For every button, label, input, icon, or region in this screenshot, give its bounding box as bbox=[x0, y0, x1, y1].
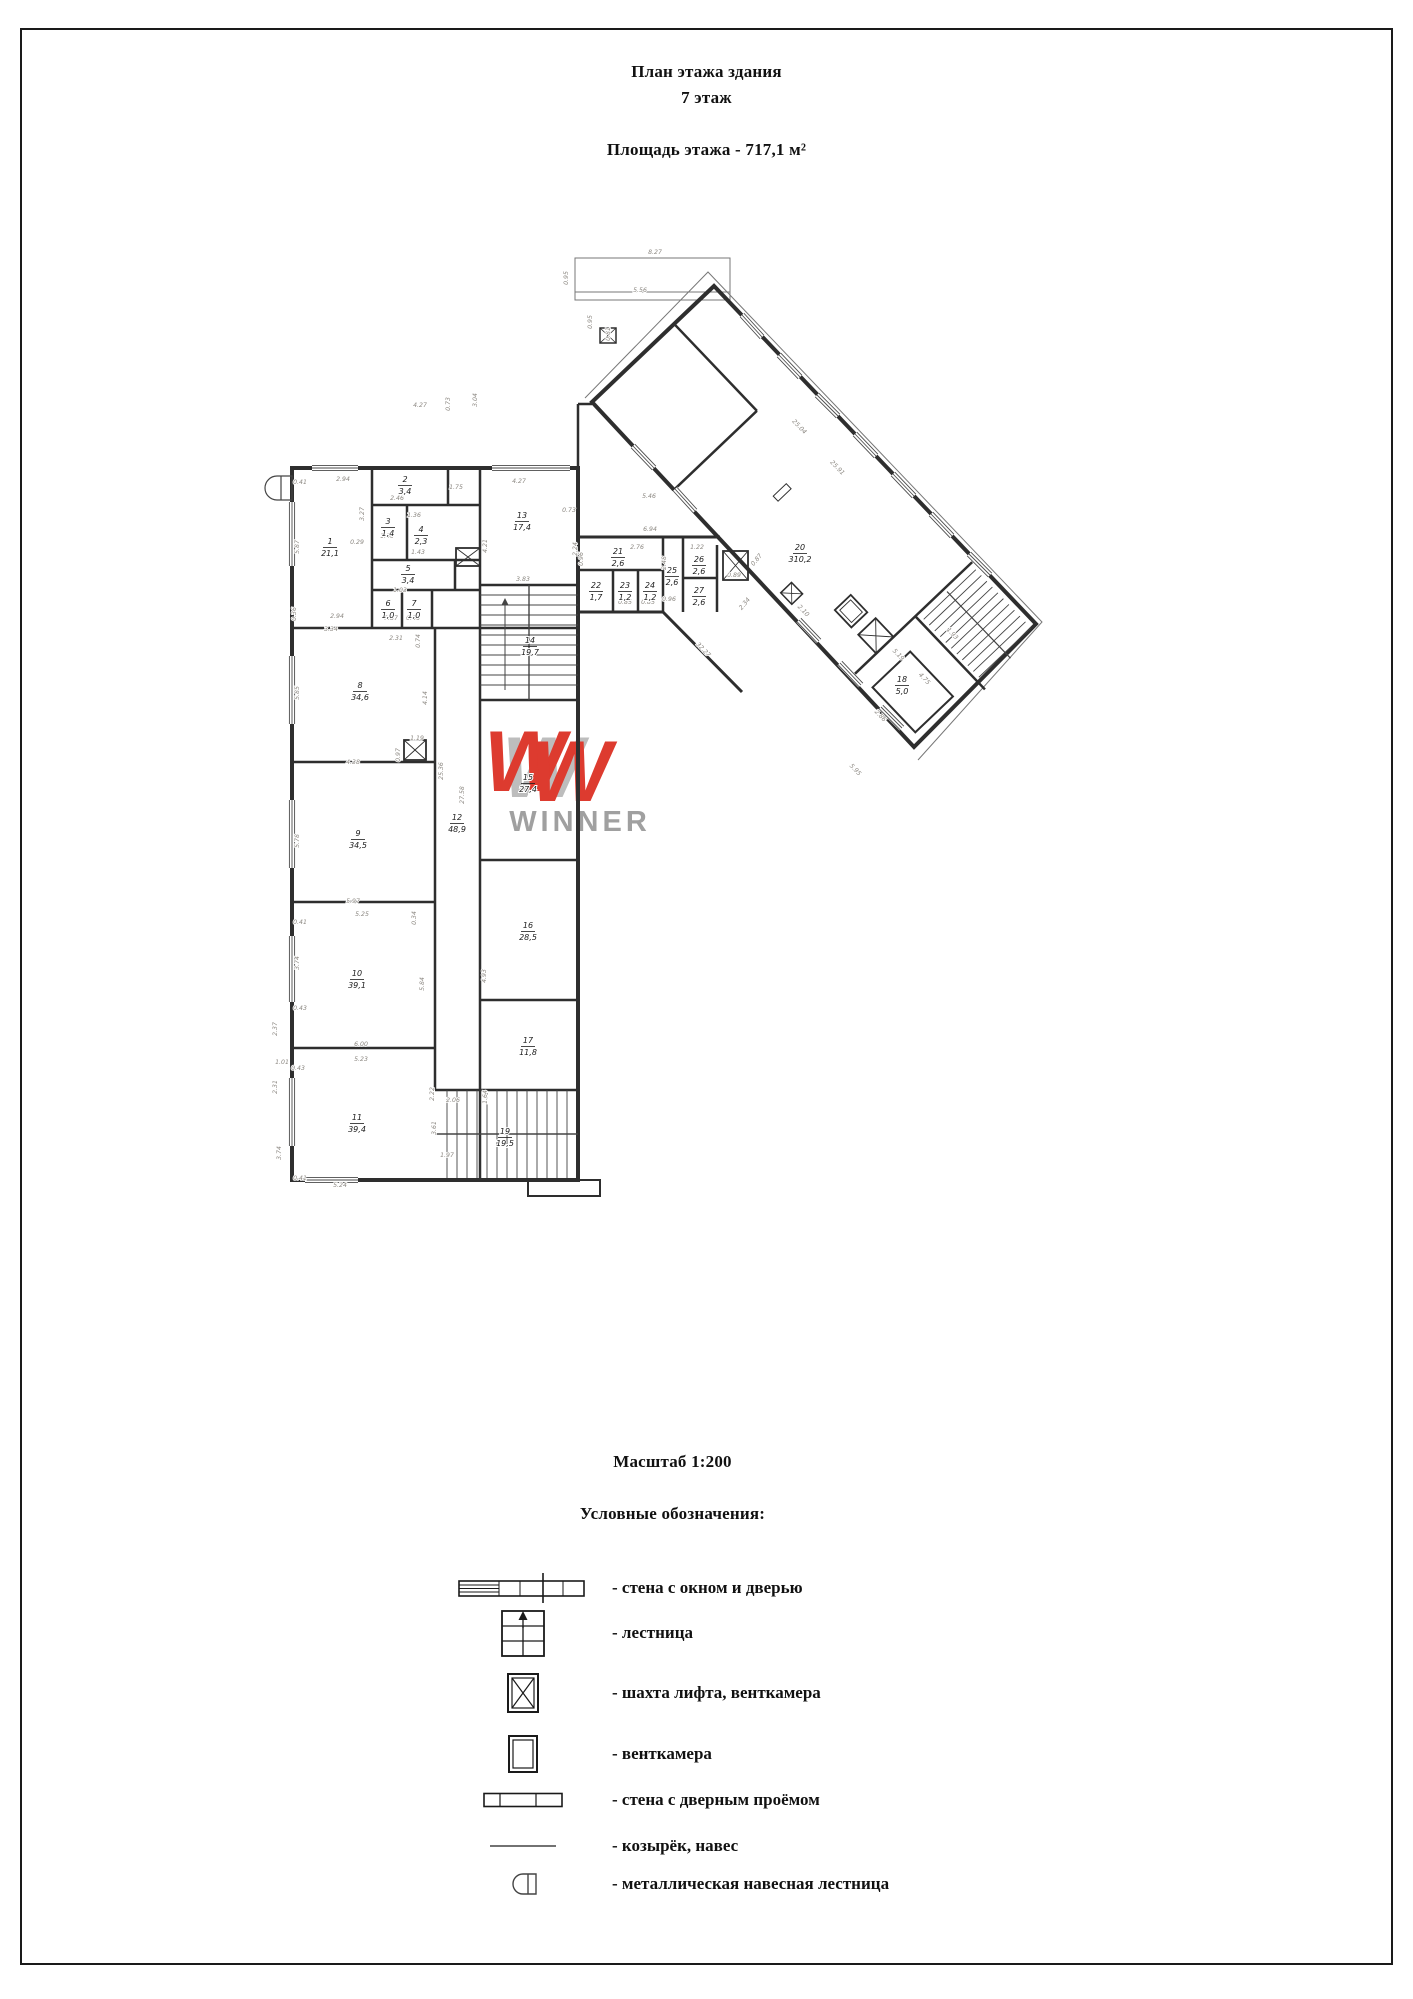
legend-row: - лестница bbox=[455, 1608, 1095, 1658]
floor-area: Площадь этажа - 717,1 м² bbox=[0, 140, 1413, 160]
floor-number: 7 этаж bbox=[0, 88, 1413, 108]
legend-row: - венткамера bbox=[455, 1734, 1095, 1774]
canopy-icon bbox=[455, 1842, 590, 1850]
vent-chamber-icon bbox=[455, 1734, 590, 1774]
legend-heading: Условные обозначения: bbox=[0, 1504, 1379, 1524]
legend-row: - стена с дверным проёмом bbox=[455, 1790, 1095, 1810]
metal-ladder-icon bbox=[455, 1872, 590, 1896]
legend-row: - козырёк, навес bbox=[455, 1836, 1095, 1856]
stairs-icon bbox=[455, 1608, 590, 1658]
scale-label: Масштаб 1:200 bbox=[0, 1452, 1379, 1472]
logo-w2-icon: W bbox=[530, 732, 611, 812]
wall-window-door-icon bbox=[455, 1572, 590, 1604]
legend-row: - металлическая навесная лестница bbox=[455, 1872, 1095, 1896]
legend-row: - шахта лифта, венткамера bbox=[455, 1672, 1095, 1714]
logo-text: WINNER bbox=[468, 806, 692, 839]
legend-row: - стена с окном и дверью bbox=[455, 1572, 1095, 1604]
winner-logo: W W W WINNER bbox=[468, 722, 692, 842]
floor-plan-page: План этажа здания 7 этаж Площадь этажа -… bbox=[0, 0, 1413, 1999]
page-title: План этажа здания bbox=[0, 62, 1413, 82]
elevator-shaft-icon bbox=[455, 1672, 590, 1714]
wall-doorway-icon bbox=[455, 1792, 590, 1808]
